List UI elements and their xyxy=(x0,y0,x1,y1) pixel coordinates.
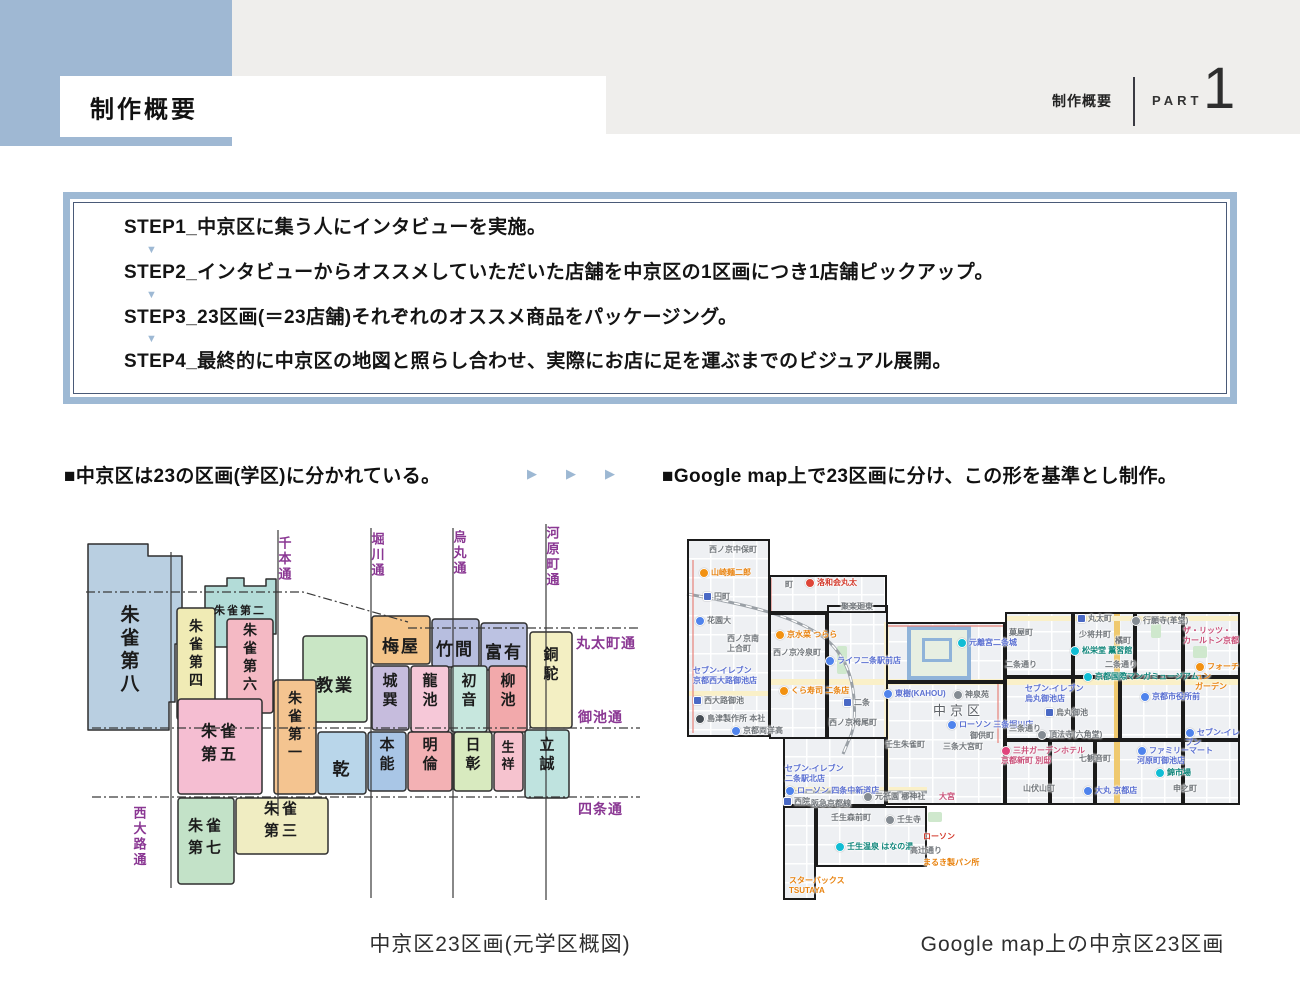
map-label: スターバックス TSUTAYA xyxy=(789,876,845,896)
step-item: STEP3_23区画(＝23店舗)それぞれのオススメ商品をパッケージング。 xyxy=(124,306,1220,330)
district-label: 音 xyxy=(461,691,476,709)
nijo-castle-shape xyxy=(907,626,971,680)
street-label: 丸太町通 xyxy=(575,635,636,652)
district-label: 四 xyxy=(189,673,203,689)
district-label: 竹間 xyxy=(435,639,474,659)
orange-pin-icon xyxy=(775,630,785,640)
district-label: 第五 xyxy=(201,744,239,763)
page-title: 制作概要 xyxy=(90,89,198,124)
map-label: 西ノ京中保町 xyxy=(709,545,757,555)
blue-pin-icon xyxy=(785,786,795,796)
district-label: 銅 xyxy=(543,646,558,664)
map-label: 烏丸御池 xyxy=(1045,708,1088,718)
district-label: 朱雀 xyxy=(264,800,300,818)
orange-pin-icon xyxy=(1195,662,1205,672)
step-arrow-icon: ▼ xyxy=(146,245,1220,256)
map-label: 西大路御池 xyxy=(693,696,744,706)
teal-pin-icon xyxy=(1070,646,1080,656)
map-label: 東樹(KAHOU) xyxy=(883,689,946,699)
district-label: 柳 xyxy=(500,672,515,690)
map-label: ファミリーマート 河原町御池店 xyxy=(1137,746,1213,766)
district-label: 第 xyxy=(189,654,203,671)
map-label: 西ノ京冷泉町 xyxy=(773,648,821,658)
step-arrow-icon: ▼ xyxy=(146,334,1220,345)
map-road xyxy=(884,622,889,805)
street-label: 河 xyxy=(546,526,559,541)
map-label: 島津製作所 本社 xyxy=(695,714,765,724)
map-label: 神泉苑 xyxy=(953,690,989,700)
district-label: 八 xyxy=(120,674,140,695)
station-pin-icon xyxy=(1077,614,1086,623)
district-label: 雀 xyxy=(188,636,203,653)
right-triangle-icon: ▶ xyxy=(566,466,576,482)
district-label: 龍 xyxy=(422,672,437,690)
part-number: 1 xyxy=(1203,60,1235,118)
district-label: 梅屋 xyxy=(382,636,420,656)
blue-pin-icon xyxy=(825,656,835,666)
district-label: 彰 xyxy=(465,755,480,773)
slide-canvas: 制作概要 制作概要 PART 1 STEP1_中京区に集う人にインタビューを実施… xyxy=(0,0,1300,1000)
map-label: 壬生温泉 はなの湯 xyxy=(835,842,913,852)
district-label: 雀 xyxy=(242,640,257,657)
map-label: 七観音町 xyxy=(1079,754,1111,764)
map-label: 二条通り xyxy=(1105,660,1137,670)
steps-panel: STEP1_中京区に集う人にインタビューを実施。▼STEP2_インタビューからオ… xyxy=(63,192,1237,404)
district-label: 第七 xyxy=(188,839,224,857)
map-label: セブン-イレブン 二条駅北店 xyxy=(785,764,844,784)
teal-pin-icon xyxy=(1155,768,1165,778)
street-label: 通 xyxy=(133,852,146,867)
street-label: 通 xyxy=(546,572,559,587)
district-label: 初 xyxy=(461,672,476,690)
header-divider xyxy=(1133,77,1135,126)
street-label: 通 xyxy=(371,563,384,578)
gray-pin-icon xyxy=(953,690,963,700)
district-label: 第 xyxy=(288,726,302,743)
district-label: 朱 xyxy=(189,618,204,635)
district-label: 雀 xyxy=(119,627,139,649)
map-label: 少将井町 xyxy=(1079,630,1111,640)
blue-pin-icon xyxy=(1083,786,1093,796)
map-label: 西ノ京栂尾町 xyxy=(829,718,877,728)
title-box: 制作概要 xyxy=(60,76,606,137)
map-label: セブン-イレブン 烏丸御池店 xyxy=(1025,684,1084,704)
map-label: 行願寺(革堂) xyxy=(1131,616,1188,626)
map-label: 壬生朱雀町 xyxy=(885,740,925,750)
district-label: 朱 xyxy=(120,603,140,626)
step-item: STEP2_インタビューからオススメしていただいた店舗を中京区の1区画につき1店… xyxy=(124,261,1220,285)
map-label: 円町 xyxy=(703,592,730,602)
blue-pin-icon xyxy=(731,726,741,736)
station-pin-icon xyxy=(703,592,712,601)
map-label: 菓屋町 xyxy=(1009,628,1033,638)
street-label: 川 xyxy=(370,547,384,562)
district-label: 城 xyxy=(382,672,397,690)
district-label: 池 xyxy=(422,691,437,709)
street-label: 原 xyxy=(546,541,559,556)
map-label: 山伏山町 xyxy=(1023,784,1055,794)
street-label: 烏 xyxy=(453,530,466,545)
pink-pin-icon xyxy=(1001,746,1011,756)
teal-pin-icon xyxy=(957,638,967,648)
street-label: 本 xyxy=(278,551,291,566)
street-label: 丸 xyxy=(452,545,467,560)
blue-pin-icon xyxy=(947,720,957,730)
district-label: 朱雀 xyxy=(201,721,239,740)
left-section-heading: ■中京区は23の区画(学区)に分かれている。 xyxy=(64,461,441,488)
street-label: 堀 xyxy=(371,532,384,547)
part-label: PART xyxy=(1152,93,1202,108)
map-label: 高辻通り xyxy=(910,846,942,856)
district-label: 雀 xyxy=(287,708,302,725)
district-label: 巽 xyxy=(382,692,397,709)
district-label: 朱雀第二 xyxy=(213,603,266,617)
step-arrow-icon: ▼ xyxy=(146,290,1220,301)
gray-pin-icon xyxy=(1037,730,1047,740)
teal-pin-icon xyxy=(835,842,845,852)
district-label: 生 xyxy=(501,740,514,755)
map-label: 西院 xyxy=(783,797,810,807)
map-label: 京都国際マンガミュージアム xyxy=(1083,672,1199,682)
teal-pin-icon xyxy=(1083,672,1093,682)
left-map-caption: 中京区23区画(元学区概図) xyxy=(330,928,670,958)
blue-pin-icon xyxy=(883,689,893,699)
map-label: くら寿司 二条店 xyxy=(779,686,849,696)
street-label: 千 xyxy=(278,536,291,551)
dark-pin-icon xyxy=(695,714,705,724)
map-label: 錦市場 xyxy=(1155,768,1191,778)
map-label: 洛和会丸太 xyxy=(805,578,857,588)
street-label: 大 xyxy=(133,821,146,836)
map-label: 京水菜 つらら xyxy=(775,630,837,640)
map-label: 大丸 京都店 xyxy=(1083,786,1137,796)
map-park xyxy=(928,812,942,822)
blue-pin-icon xyxy=(695,616,705,626)
map-label: ザ・リッツ・ カールトン京都 xyxy=(1183,626,1239,646)
map-label: 松栄堂 薫習館 xyxy=(1070,646,1132,656)
google-map-figure: 西ノ京中保町山崎麺二郎円町花園大西ノ京南 上合町セブン-イレブン 京都西大路御池… xyxy=(685,528,1240,913)
map-label: 御供町 xyxy=(970,731,994,741)
district-label: 祥 xyxy=(501,757,514,772)
right-triangle-icon: ▶ xyxy=(527,466,537,482)
district-label: 六 xyxy=(243,676,257,693)
map-road xyxy=(1005,616,1240,621)
map-label: 申之町 xyxy=(1173,784,1197,794)
map-label: 山崎麺二郎 xyxy=(699,568,751,578)
street-label: 通 xyxy=(453,561,466,576)
red-pin-icon xyxy=(805,578,815,588)
district-label: 乾 xyxy=(333,759,352,779)
nijo-castle-inner-moat xyxy=(922,638,952,662)
district-label: 第三 xyxy=(264,822,300,840)
station-pin-icon xyxy=(693,696,702,705)
station-pin-icon xyxy=(783,797,792,806)
map-label: まるき製パン所 xyxy=(923,858,979,868)
map-tile xyxy=(1120,677,1183,740)
map-label: 頂法寺(六角堂) xyxy=(1037,730,1102,740)
map-label: 壬生寺 xyxy=(885,815,921,825)
district-label: 第 xyxy=(243,658,257,675)
gray-pin-icon xyxy=(863,792,873,802)
orange-pin-icon xyxy=(699,568,709,578)
map-label: セブン-イレブン 京都西大路御池店 xyxy=(693,666,757,686)
right-section-heading: ■Google map上で23区画に分け、この形を基準とし制作。 xyxy=(662,461,1177,488)
district-label: 朱 xyxy=(243,622,258,639)
right-triangle-icon: ▶ xyxy=(605,466,615,482)
street-label: 路 xyxy=(133,837,147,852)
map-label: 西ノ京南 上合町 xyxy=(727,634,759,654)
map-label: 三井ガーデンホテル 京都新町 別邸 xyxy=(1001,746,1085,766)
district-label: 一 xyxy=(288,746,302,761)
street-label: 通 xyxy=(278,567,291,582)
map-label: 橘町 xyxy=(1115,636,1131,646)
gray-pin-icon xyxy=(1131,616,1141,626)
blue-pin-icon xyxy=(1137,746,1147,756)
step-item: STEP1_中京区に集う人にインタビューを実施。 xyxy=(124,216,1220,240)
district-label: 本 xyxy=(379,736,394,754)
map-label: 元離宮二条城 xyxy=(957,638,1017,648)
street-label: 四条通 xyxy=(578,801,623,818)
station-pin-icon xyxy=(1045,708,1054,717)
station-pin-icon xyxy=(843,698,852,707)
steps-list: STEP1_中京区に集う人にインタビューを実施。▼STEP2_インタビューからオ… xyxy=(124,216,1220,374)
heading-arrows: ▶▶▶ xyxy=(527,466,615,482)
blue-pin-icon xyxy=(1185,728,1195,738)
map-label: ローソン xyxy=(923,832,955,842)
district-label: 明 xyxy=(422,737,437,754)
map-label: 元祇園 梛神社 xyxy=(863,792,925,802)
district-label: 第 xyxy=(120,649,139,672)
district-label: 池 xyxy=(500,691,515,709)
step-item: STEP4_最終的に中京区の地図と照らし合わせ、実際にお店に足を運ぶまでのビジュ… xyxy=(124,350,1220,374)
street-label: 御池通 xyxy=(577,709,623,726)
district-label: 立 xyxy=(539,736,554,754)
district-label: 富有 xyxy=(485,642,523,662)
map-label: 二条 xyxy=(843,698,870,708)
district-label: 日 xyxy=(465,737,480,754)
map-label: 町 xyxy=(785,580,793,590)
orange-pin-icon xyxy=(779,686,789,696)
map-label: 京都市役所前 xyxy=(1140,692,1200,702)
header-section-label: 制作概要 xyxy=(1052,91,1112,111)
gray-pin-icon xyxy=(885,815,895,825)
map-label: 二条通り xyxy=(1005,660,1037,670)
district-label: 教業 xyxy=(315,675,354,695)
map-label: 花園大 xyxy=(695,616,731,626)
right-map-caption: Google map上の中京区23区画 xyxy=(900,928,1245,958)
district-map-figure: 朱雀第八朱雀第二朱雀第四朱雀第六教業梅屋竹間富有銅駝城巽龍池初音柳池本能明倫日彰… xyxy=(78,516,643,916)
street-label: 西 xyxy=(133,806,146,821)
district-label: 倫 xyxy=(422,755,438,773)
map-label: 三条大宮町 xyxy=(943,742,983,752)
district-label: 駝 xyxy=(543,665,558,683)
blue-pin-icon xyxy=(1140,692,1150,702)
district-label: 誠 xyxy=(539,755,554,773)
map-label: 大宮 xyxy=(939,792,955,802)
map-label: 阪急京都線 xyxy=(811,799,851,809)
map-park xyxy=(1193,646,1207,658)
map-label: 壬生森前町 xyxy=(831,813,871,823)
map-label: フォーチュン ガーデン xyxy=(1195,662,1240,692)
map-label: 丸太町 xyxy=(1077,614,1112,624)
map-label: 中京区 xyxy=(933,703,984,719)
map-label: 聚楽廻東 xyxy=(841,602,873,612)
map-label: ライフ二条駅前店 xyxy=(825,656,901,666)
district-label: 能 xyxy=(379,755,394,773)
map-label: 京都両洋高 xyxy=(731,726,783,736)
district-label: 朱雀 xyxy=(188,817,224,835)
district-label: 朱 xyxy=(288,690,303,707)
street-label: 町 xyxy=(546,557,559,572)
